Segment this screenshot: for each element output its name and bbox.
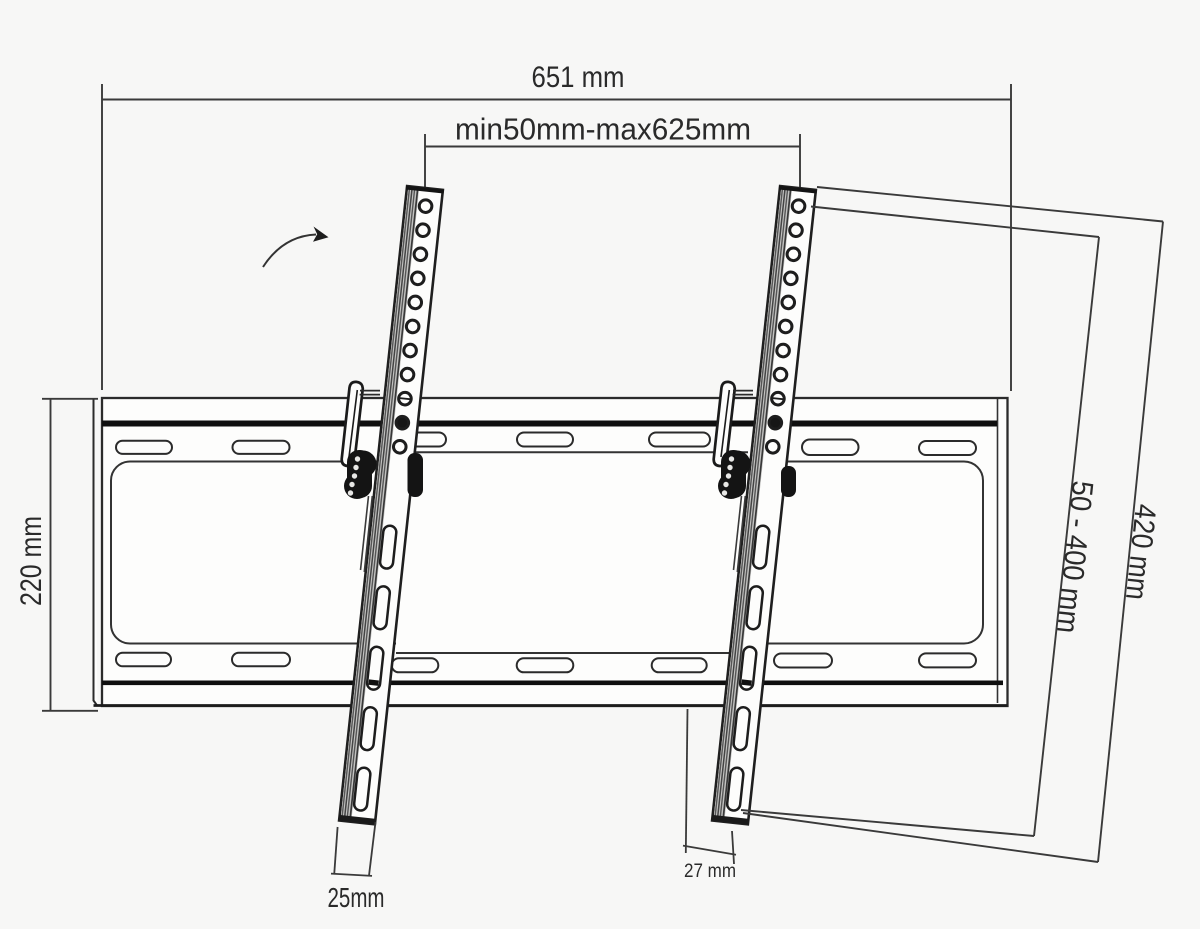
svg-text:220 mm: 220 mm <box>15 516 48 606</box>
svg-text:651 mm: 651 mm <box>532 61 625 94</box>
svg-text:25mm: 25mm <box>328 882 385 913</box>
svg-text:27 mm: 27 mm <box>684 861 736 882</box>
svg-text:min50mm-max625mm: min50mm-max625mm <box>455 112 751 147</box>
